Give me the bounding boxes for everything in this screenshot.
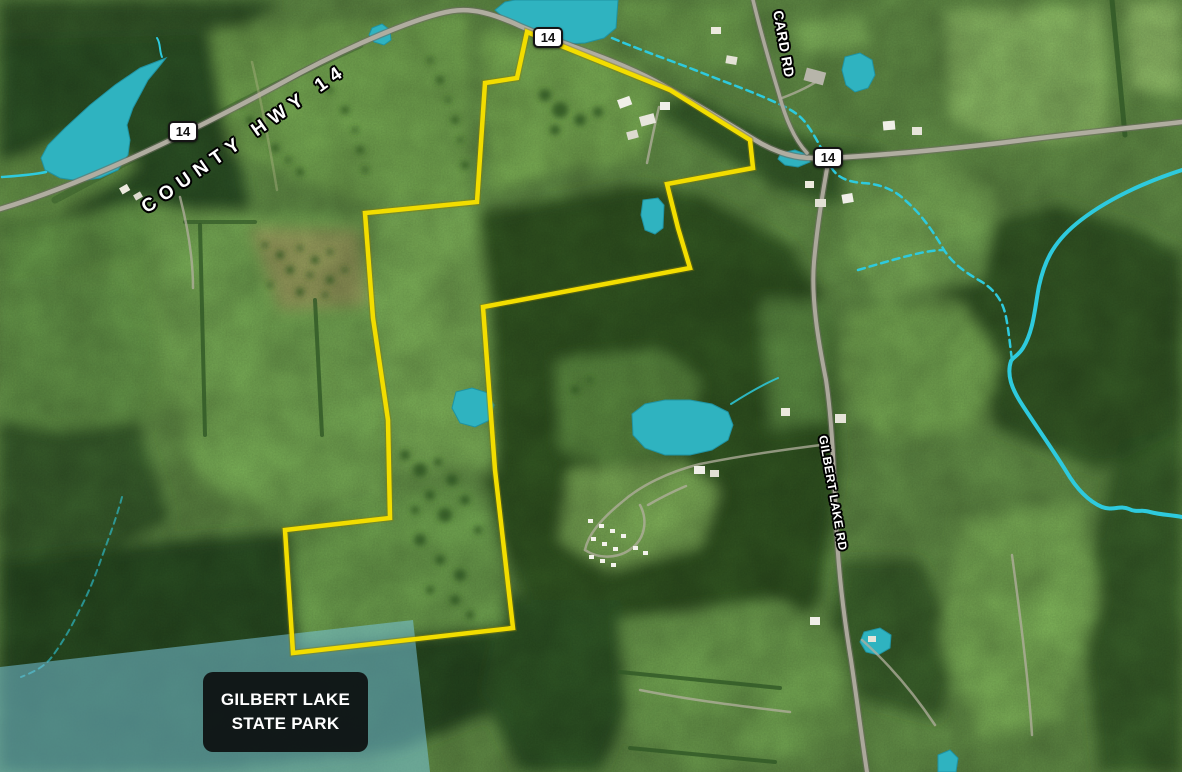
route-shield-left-number: 14 <box>176 124 190 139</box>
route-shield-right: 14 <box>813 147 843 168</box>
state-park-label-box: GILBERT LAKE STATE PARK <box>203 672 368 752</box>
pond-notch <box>641 198 664 234</box>
route-shield-right-number: 14 <box>821 150 835 165</box>
pond-center <box>632 400 733 455</box>
satellite-imagery <box>0 0 1182 772</box>
state-park-label-line1: GILBERT LAKE <box>221 688 350 712</box>
aerial-map-canvas[interactable]: 14 14 14 COUNTY HWY 14 CARD RD GILBERT L… <box>0 0 1182 772</box>
route-shield-top-number: 14 <box>541 30 555 45</box>
state-park-label-line2: STATE PARK <box>232 712 340 736</box>
route-shield-top: 14 <box>533 27 563 48</box>
route-shield-left: 14 <box>168 121 198 142</box>
